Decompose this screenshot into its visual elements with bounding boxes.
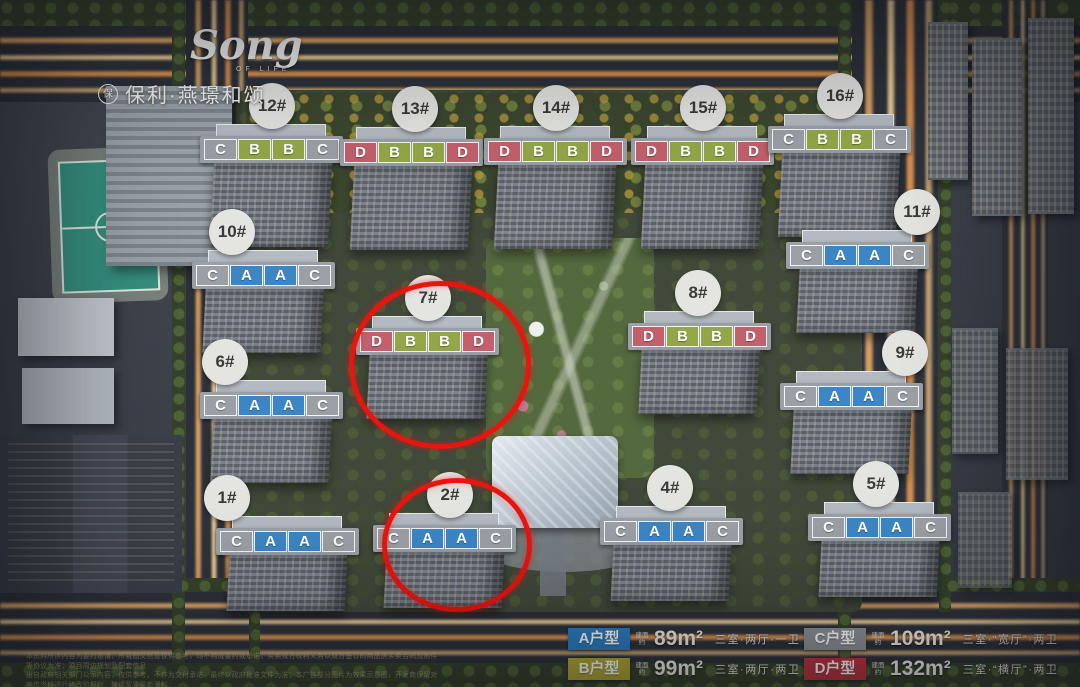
building-number-badge: 5# [853, 461, 899, 507]
building-number-badge: 9# [882, 330, 928, 376]
unit-label-C: C [322, 531, 355, 552]
unit-label-B: B [666, 326, 699, 347]
unit-label-bar: DBBD [632, 326, 767, 347]
unit-desc: 三室·两厅·两卫 [715, 661, 800, 677]
unit-label-bar: CAAC [604, 521, 739, 542]
unit-label-bar: DBBD [488, 141, 623, 162]
unit-desc: 三室·两厅·一卫 [715, 631, 800, 647]
unit-label-A: A [230, 265, 263, 286]
unit-label-C: C [772, 129, 805, 150]
unit-label-bar: CAAC [784, 386, 919, 407]
building-number-badge: 14# [533, 85, 579, 131]
unit-desc: 三室·“横厅”·两卫 [963, 661, 1059, 677]
disclaimer-line: 本资料所涉内容为要约邀请，所载图文信息仅供参考，均不构成要约或承诺，买卖双方权利… [26, 652, 442, 671]
unit-label-A: A [288, 531, 321, 552]
unit-label-C: C [204, 395, 237, 416]
building-11: 11#CAAC [790, 245, 925, 266]
building-number-badge: 13# [392, 86, 438, 132]
disclaimer-line: 出自政府相关部门公示内容，仅供参考，不作为交付承诺，最终以政府批准文件为准；本广… [26, 671, 442, 687]
site-plan-rendering: 12#CBBC13#DBBD14#DBBD15#DBBD16#CBBC10#CA… [0, 0, 1080, 687]
unit-label-D: D [737, 141, 770, 162]
unit-label-bar: CBBC [772, 129, 907, 150]
unit-label-A: A [254, 531, 287, 552]
unit-label-A: A [672, 521, 705, 542]
building-9: 9#CAAC [784, 386, 919, 407]
unit-label-B: B [806, 129, 839, 150]
unit-area: 132m² [890, 657, 951, 681]
area-prefix: 建面约 [635, 632, 649, 646]
unit-label-B: B [378, 142, 411, 163]
unit-label-B: B [522, 141, 555, 162]
unit-label-C: C [790, 245, 823, 266]
building-number-badge: 4# [647, 465, 693, 511]
brand-script: Song [190, 26, 338, 66]
legend-item-C: C户型建面约109m²三室·“宽厅”·两卫 [804, 627, 1073, 651]
building-facade [641, 165, 763, 249]
brand-logo: Song OF LIFE 保 保利·燕璟和颂 [98, 26, 338, 108]
unit-label-bar: CAAC [790, 245, 925, 266]
unit-label-A: A [638, 521, 671, 542]
building-4: 4#CAAC [604, 521, 739, 542]
unit-label-A: A [824, 245, 857, 266]
unit-label-C: C [892, 245, 925, 266]
unit-label-A: A [858, 245, 891, 266]
legend-item-D: D户型建面约132m²三室·“横厅”·两卫 [804, 657, 1073, 681]
unit-type-chip-B: B户型 [568, 658, 630, 680]
building-1: 1#CAAC [220, 531, 355, 552]
building-facade [227, 555, 348, 611]
building-6: 6#CAAC [204, 395, 339, 416]
unit-label-C: C [914, 517, 947, 538]
building-facade [790, 410, 911, 474]
area-prefix: 建面约 [871, 632, 885, 646]
legend-item-B: B户型建面约99m²三室·两厅·两卫 [568, 657, 804, 681]
building-number-badge: 8# [675, 270, 721, 316]
unit-type-chip-D: D户型 [804, 658, 866, 680]
unit-area: 99m² [654, 657, 703, 681]
building-13: 13#DBBD [344, 142, 479, 163]
unit-label-C: C [204, 139, 237, 160]
unit-label-C: C [706, 521, 739, 542]
unit-label-A: A [264, 265, 297, 286]
legend-item-A: A户型建面约89m²三室·两厅·一卫 [568, 627, 804, 651]
unit-label-bar: CBBC [204, 139, 339, 160]
unit-type-chip-A: A户型 [568, 628, 630, 650]
unit-label-D: D [632, 326, 665, 347]
brand-name-row: 保 保利·燕璟和颂 [98, 79, 338, 108]
unit-label-C: C [784, 386, 817, 407]
unit-label-D: D [734, 326, 767, 347]
unit-label-B: B [412, 142, 445, 163]
unit-label-A: A [846, 517, 879, 538]
unit-label-A: A [272, 395, 305, 416]
unit-label-A: A [238, 395, 271, 416]
building-number-badge: 11# [894, 189, 940, 235]
building-number-badge: 10# [209, 209, 255, 255]
disclaimer: 本资料所涉内容为要约邀请，所载图文信息仅供参考，均不构成要约或承诺，买卖双方权利… [26, 652, 442, 687]
unit-label-A: A [818, 386, 851, 407]
area-prefix: 建面约 [635, 662, 649, 676]
unit-label-bar: CAAC [220, 531, 355, 552]
unit-label-B: B [272, 139, 305, 160]
unit-label-B: B [700, 326, 733, 347]
unit-label-C: C [306, 139, 339, 160]
unit-area: 89m² [654, 627, 703, 651]
unit-label-D: D [635, 141, 668, 162]
building-number-badge: 15# [680, 85, 726, 131]
unit-label-C: C [812, 517, 845, 538]
building-number-badge: 6# [202, 339, 248, 385]
building-facade [210, 419, 331, 483]
building-5: 5#CAAC [812, 517, 947, 538]
building-facade [819, 541, 940, 597]
building-facade [638, 350, 759, 414]
unit-label-B: B [238, 139, 271, 160]
building-facade [350, 166, 472, 250]
area-prefix: 建面约 [871, 662, 885, 676]
brand-script-subtitle: OF LIFE [236, 66, 338, 73]
building-16: 16#CBBC [772, 129, 907, 150]
building-number-badge: 1# [204, 475, 250, 521]
unit-label-B: B [669, 141, 702, 162]
unit-type-legend: A户型建面约89m²三室·两厅·一卫C户型建面约109m²三室·“宽厅”·两卫B… [568, 624, 1073, 684]
building-number-badge: 16# [817, 73, 863, 119]
highlight-circle-7 [349, 281, 531, 449]
brand-name: 保利·燕璟和颂 [125, 79, 266, 108]
unit-label-B: B [556, 141, 589, 162]
unit-label-B: B [703, 141, 736, 162]
unit-desc: 三室·“宽厅”·两卫 [963, 631, 1059, 647]
unit-label-D: D [590, 141, 623, 162]
unit-label-C: C [604, 521, 637, 542]
unit-label-D: D [488, 141, 521, 162]
unit-label-bar: DBBD [344, 142, 479, 163]
unit-area: 109m² [890, 627, 951, 651]
unit-label-C: C [874, 129, 907, 150]
building-10: 10#CAAC [196, 265, 331, 286]
building-8: 8#DBBD [632, 326, 767, 347]
unit-label-C: C [196, 265, 229, 286]
unit-label-D: D [446, 142, 479, 163]
unit-label-C: C [306, 395, 339, 416]
unit-label-D: D [344, 142, 377, 163]
building-facade [796, 269, 917, 333]
poly-logo-icon: 保 [98, 84, 118, 104]
building-14: 14#DBBD [488, 141, 623, 162]
unit-label-A: A [852, 386, 885, 407]
unit-label-C: C [886, 386, 919, 407]
building-15: 15#DBBD [635, 141, 770, 162]
highlight-circle-2 [382, 478, 532, 612]
building-12: 12#CBBC [204, 139, 339, 160]
unit-label-bar: DBBD [635, 141, 770, 162]
unit-label-bar: CAAC [812, 517, 947, 538]
unit-label-bar: CAAC [204, 395, 339, 416]
unit-label-A: A [880, 517, 913, 538]
building-facade [778, 153, 900, 237]
unit-label-C: C [298, 265, 331, 286]
building-facade [611, 545, 732, 601]
unit-label-C: C [220, 531, 253, 552]
unit-type-chip-C: C户型 [804, 628, 866, 650]
unit-label-B: B [840, 129, 873, 150]
unit-label-bar: CAAC [196, 265, 331, 286]
building-facade [494, 165, 616, 249]
